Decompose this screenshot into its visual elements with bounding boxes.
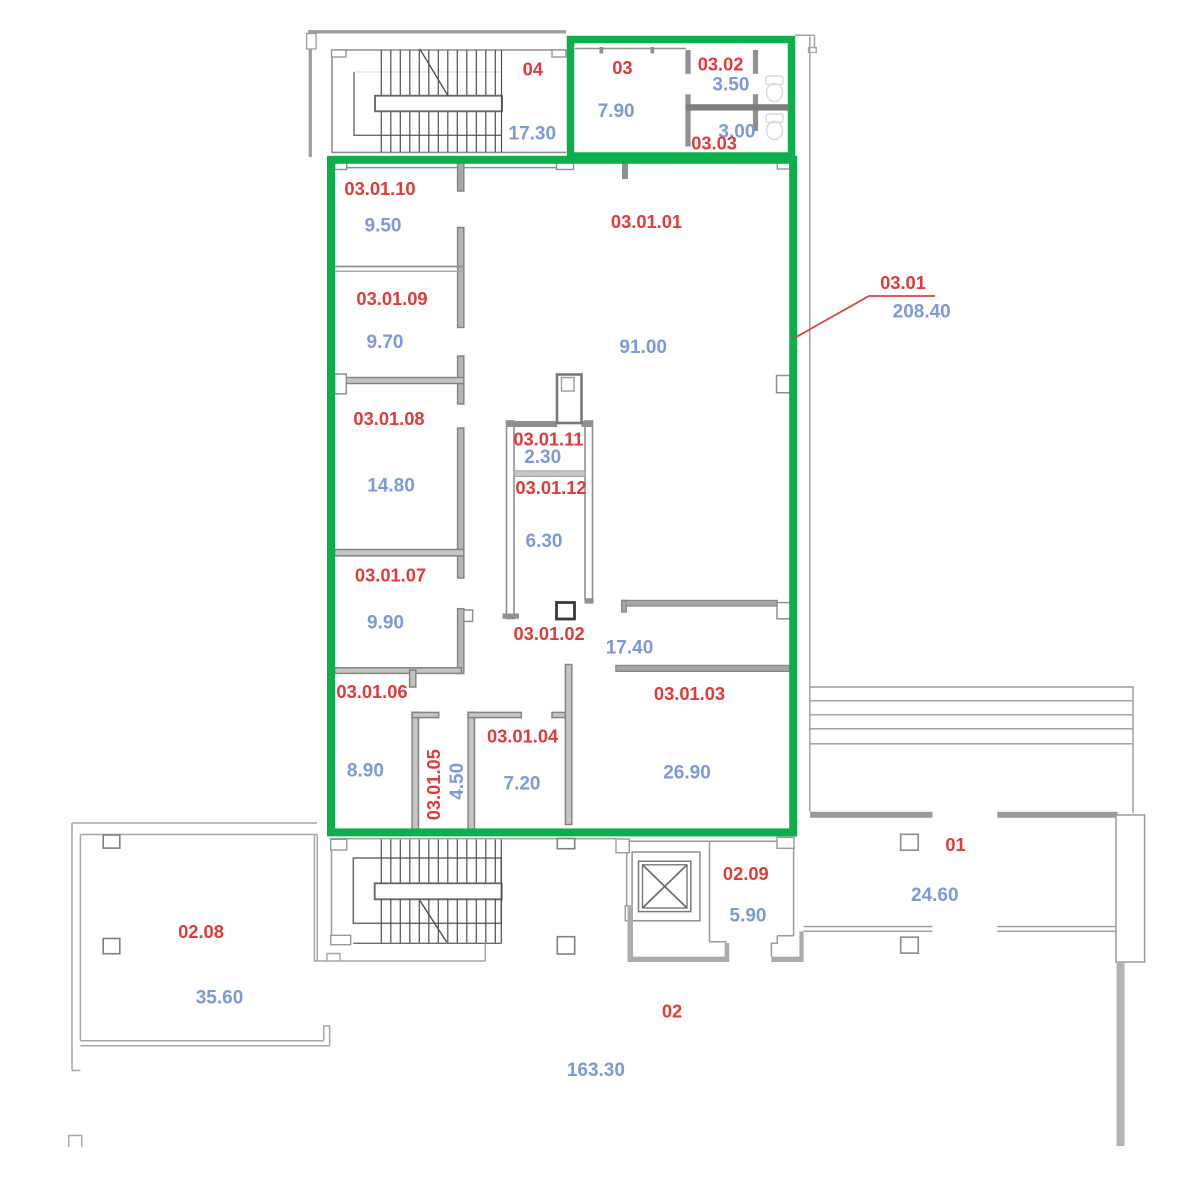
svg-text:03.01.08: 03.01.08 <box>353 408 424 429</box>
svg-text:6.30: 6.30 <box>526 531 563 552</box>
svg-text:163.30: 163.30 <box>567 1060 625 1081</box>
svg-text:4.50: 4.50 <box>447 763 468 800</box>
svg-text:02.09: 02.09 <box>723 863 769 884</box>
svg-text:2.30: 2.30 <box>524 447 561 468</box>
svg-text:02.08: 02.08 <box>178 921 224 942</box>
svg-text:3.50: 3.50 <box>712 75 749 96</box>
svg-text:03.01.01: 03.01.01 <box>611 211 682 232</box>
svg-text:03.01.02: 03.01.02 <box>514 623 585 644</box>
svg-text:208.40: 208.40 <box>893 301 951 322</box>
svg-text:01: 01 <box>945 834 965 855</box>
svg-text:02: 02 <box>662 1001 682 1022</box>
svg-text:03.01.05: 03.01.05 <box>423 749 444 820</box>
svg-text:9.90: 9.90 <box>367 613 404 634</box>
svg-text:03.01: 03.01 <box>880 272 926 293</box>
svg-text:24.60: 24.60 <box>911 885 959 906</box>
svg-text:03.01.03: 03.01.03 <box>654 683 725 704</box>
svg-text:8.90: 8.90 <box>347 761 384 782</box>
svg-text:35.60: 35.60 <box>196 988 244 1009</box>
svg-text:03.01.06: 03.01.06 <box>336 681 407 702</box>
svg-text:03.01.10: 03.01.10 <box>344 178 415 199</box>
svg-text:14.80: 14.80 <box>367 475 415 496</box>
svg-text:17.30: 17.30 <box>509 123 557 144</box>
svg-text:03.02: 03.02 <box>698 54 744 75</box>
svg-text:7.20: 7.20 <box>504 773 541 794</box>
svg-text:91.00: 91.00 <box>619 337 667 358</box>
svg-text:5.90: 5.90 <box>730 905 767 926</box>
svg-text:03: 03 <box>612 57 632 78</box>
svg-text:03.01.04: 03.01.04 <box>487 726 559 747</box>
svg-text:9.50: 9.50 <box>365 216 402 237</box>
svg-text:26.90: 26.90 <box>663 763 711 784</box>
svg-text:04: 04 <box>523 58 544 79</box>
svg-text:17.40: 17.40 <box>606 638 654 659</box>
svg-text:7.90: 7.90 <box>598 101 635 122</box>
svg-text:03.03: 03.03 <box>691 132 737 153</box>
svg-text:03.01.12: 03.01.12 <box>515 477 586 498</box>
svg-text:03.01.09: 03.01.09 <box>356 288 427 309</box>
svg-text:9.70: 9.70 <box>367 332 404 353</box>
svg-text:03.01.07: 03.01.07 <box>355 565 426 586</box>
